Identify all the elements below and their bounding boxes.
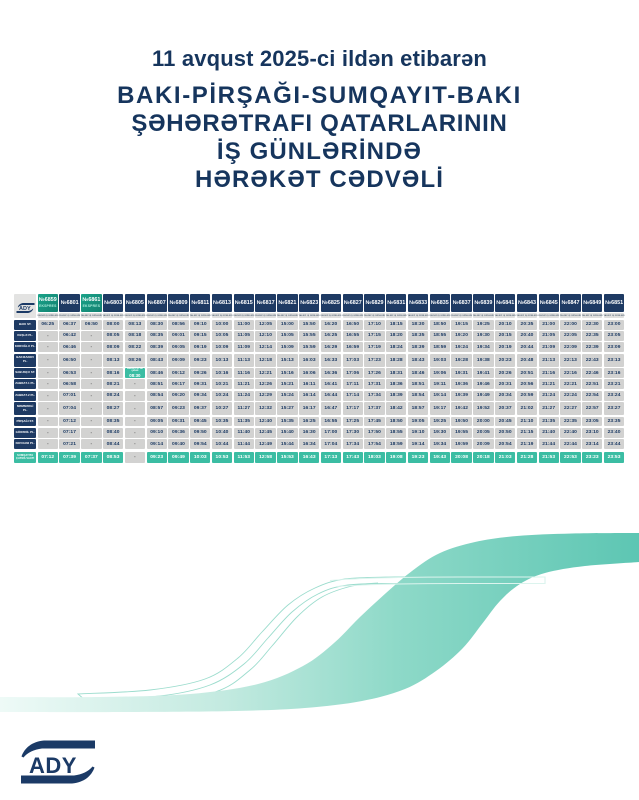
svg-text:ADY: ADY [29, 753, 77, 778]
svg-text:ADY: ADY [19, 306, 31, 312]
